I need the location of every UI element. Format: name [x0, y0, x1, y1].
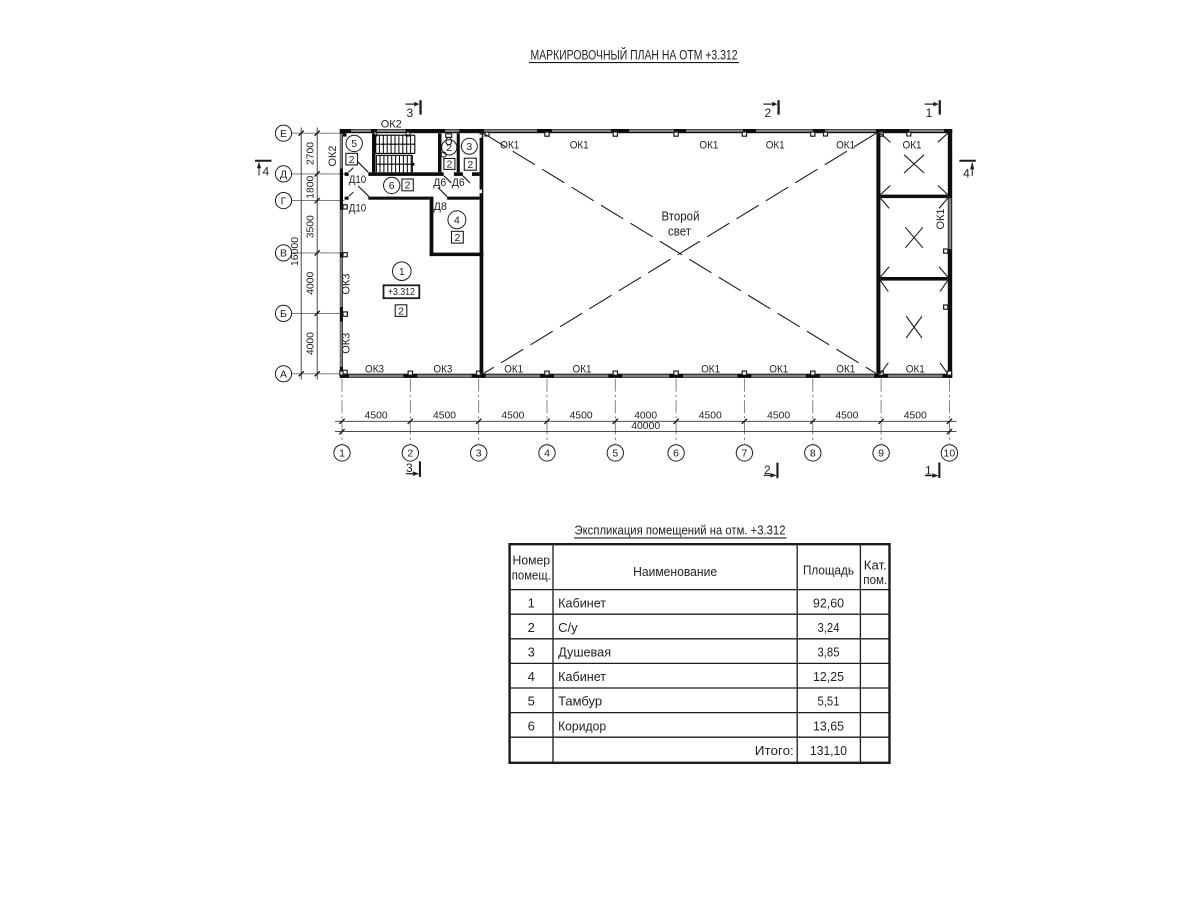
svg-text:2: 2 [764, 106, 771, 120]
svg-text:ОК1: ОК1 [906, 363, 925, 375]
svg-text:Кабинет: Кабинет [558, 669, 606, 684]
svg-text:2: 2 [454, 232, 460, 244]
svg-text:Номер: Номер [513, 553, 551, 567]
svg-text:Наименование: Наименование [633, 565, 717, 579]
svg-text:8: 8 [810, 448, 816, 460]
svg-text:4: 4 [528, 669, 535, 684]
svg-text:5: 5 [528, 694, 535, 709]
svg-text:ОК1: ОК1 [769, 363, 788, 375]
svg-text:ОК1: ОК1 [935, 209, 947, 230]
svg-text:4000: 4000 [304, 332, 316, 355]
svg-text:ОК3: ОК3 [433, 363, 452, 375]
svg-text:1: 1 [399, 266, 405, 278]
svg-text:2: 2 [528, 620, 535, 635]
svg-text:5,51: 5,51 [818, 694, 840, 709]
svg-text:ОК3: ОК3 [365, 363, 384, 375]
svg-text:4500: 4500 [365, 410, 388, 422]
svg-text:ОК3: ОК3 [341, 333, 353, 354]
svg-text:Д: Д [280, 169, 287, 181]
svg-text:4000: 4000 [304, 272, 316, 295]
svg-text:131,10: 131,10 [810, 743, 847, 758]
svg-text:3500: 3500 [304, 215, 316, 238]
svg-text:Тамбур: Тамбур [558, 694, 602, 709]
svg-text:Экспликация помещений на отм.: Экспликация помещений на отм. +3.312 [575, 522, 786, 537]
svg-text:ОК2: ОК2 [381, 119, 402, 131]
svg-text:Душевая: Душевая [558, 645, 611, 660]
svg-text:4500: 4500 [501, 410, 524, 422]
svg-text:ОК2: ОК2 [327, 146, 339, 167]
svg-text:4: 4 [544, 448, 550, 460]
svg-text:92,60: 92,60 [813, 596, 844, 611]
svg-text:В: В [280, 248, 287, 260]
svg-text:ОК1: ОК1 [500, 140, 519, 152]
svg-text:Г: Г [281, 195, 287, 207]
svg-text:3,85: 3,85 [818, 645, 840, 660]
svg-text:ОК1: ОК1 [504, 363, 523, 375]
svg-text:6: 6 [389, 180, 395, 192]
svg-text:ОК1: ОК1 [699, 140, 718, 152]
svg-text:2: 2 [446, 142, 452, 154]
svg-text:6: 6 [528, 718, 535, 733]
svg-text:1: 1 [926, 106, 933, 120]
svg-text:А: А [280, 369, 287, 381]
svg-text:Д8: Д8 [433, 201, 447, 213]
svg-text:Б: Б [280, 308, 287, 320]
svg-text:2700: 2700 [304, 142, 316, 165]
svg-text:Кат.: Кат. [864, 558, 887, 572]
svg-text:Площадь: Площадь [803, 564, 854, 578]
svg-text:МАРКИРОВОЧНЫЙ ПЛАН НА ОТМ +3.3: МАРКИРОВОЧНЫЙ ПЛАН НА ОТМ +3.312 [531, 48, 738, 63]
svg-text:4500: 4500 [767, 410, 790, 422]
svg-text:Д6: Д6 [452, 177, 465, 189]
svg-text:помещ.: помещ. [512, 569, 551, 583]
svg-text:16000: 16000 [289, 237, 301, 266]
svg-text:ОК1: ОК1 [570, 140, 589, 152]
svg-text:4: 4 [263, 165, 270, 179]
svg-text:4: 4 [963, 166, 970, 180]
svg-text:ОК3: ОК3 [341, 274, 353, 295]
svg-text:пом.: пом. [863, 573, 887, 587]
svg-text:+3.312: +3.312 [388, 287, 415, 298]
svg-text:4500: 4500 [699, 410, 722, 422]
svg-text:2: 2 [407, 448, 413, 460]
svg-text:1: 1 [339, 448, 345, 460]
svg-text:3,24: 3,24 [818, 620, 840, 635]
svg-text:Е: Е [280, 128, 287, 140]
svg-text:Д6: Д6 [433, 177, 446, 189]
svg-text:4500: 4500 [904, 410, 927, 422]
svg-text:ОК1: ОК1 [836, 140, 855, 152]
svg-text:5: 5 [612, 448, 618, 460]
svg-text:4: 4 [454, 214, 460, 226]
svg-text:ОК1: ОК1 [701, 363, 720, 375]
svg-text:Д10: Д10 [349, 174, 367, 186]
svg-text:2: 2 [405, 180, 411, 192]
svg-text:Второй: Второй [662, 209, 700, 223]
svg-text:9: 9 [878, 448, 884, 460]
svg-text:5: 5 [351, 138, 357, 150]
svg-text:Д10: Д10 [349, 202, 367, 214]
svg-text:3: 3 [406, 461, 413, 475]
svg-text:Итого:: Итого: [755, 743, 794, 758]
svg-text:3: 3 [476, 448, 482, 460]
svg-text:ОК1: ОК1 [573, 363, 592, 375]
svg-text:ОК1: ОК1 [836, 363, 855, 375]
svg-text:ОК1: ОК1 [903, 140, 922, 152]
svg-text:1: 1 [528, 596, 535, 611]
svg-text:6: 6 [673, 448, 679, 460]
svg-text:Кабинет: Кабинет [558, 596, 606, 611]
svg-text:40000: 40000 [631, 420, 660, 432]
svg-text:3: 3 [406, 106, 413, 120]
svg-text:1800: 1800 [304, 176, 316, 199]
svg-text:2: 2 [398, 305, 404, 317]
svg-text:13,65: 13,65 [813, 718, 844, 733]
svg-text:10: 10 [944, 448, 956, 460]
svg-text:2: 2 [467, 159, 473, 171]
svg-text:4500: 4500 [570, 410, 593, 422]
svg-text:2: 2 [349, 154, 355, 166]
svg-text:3: 3 [528, 645, 535, 660]
svg-text:2: 2 [446, 159, 452, 171]
svg-text:С/у: С/у [558, 620, 578, 635]
svg-text:3: 3 [466, 141, 472, 153]
svg-text:ОК1: ОК1 [766, 140, 785, 152]
svg-text:4500: 4500 [433, 410, 456, 422]
svg-text:Коридор: Коридор [558, 718, 606, 733]
svg-text:12,25: 12,25 [813, 669, 844, 684]
svg-text:свет: свет [668, 225, 691, 239]
svg-text:7: 7 [741, 448, 747, 460]
svg-text:4500: 4500 [835, 410, 858, 422]
